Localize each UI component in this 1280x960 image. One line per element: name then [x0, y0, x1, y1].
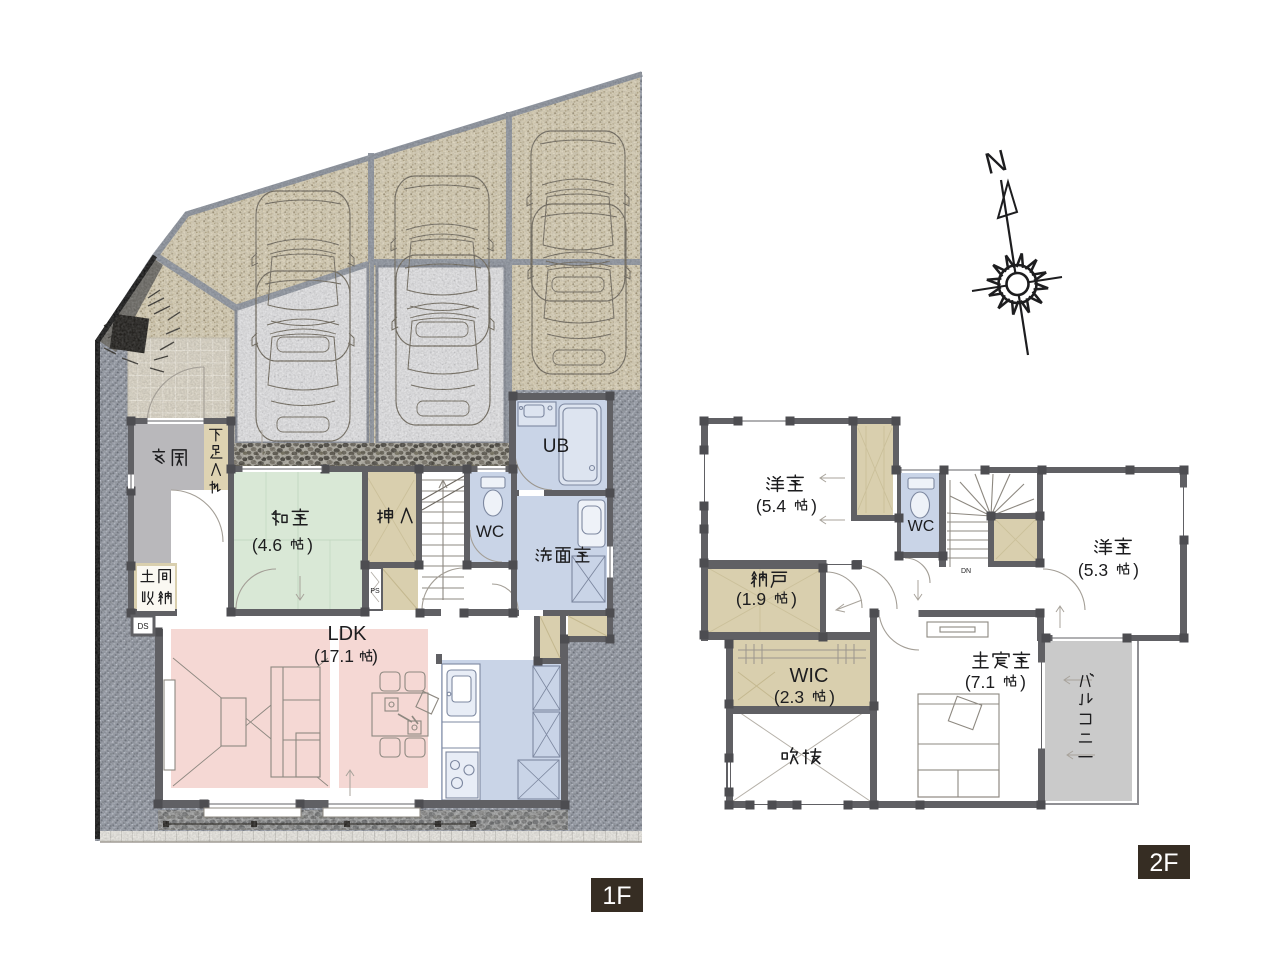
svg-text:): )	[829, 687, 835, 707]
svg-text:WC: WC	[476, 522, 504, 541]
svg-text:(7.1: (7.1	[965, 672, 995, 692]
svg-text:(17.1: (17.1	[314, 646, 354, 666]
svg-text:2F: 2F	[1149, 849, 1178, 877]
svg-text:): )	[1133, 560, 1139, 580]
svg-text:DN: DN	[961, 568, 971, 575]
svg-text:DS: DS	[137, 622, 148, 631]
svg-text:): )	[372, 646, 378, 666]
svg-text:(5.4: (5.4	[756, 496, 786, 516]
svg-text:(1.9: (1.9	[736, 589, 766, 609]
svg-text:): )	[307, 535, 313, 555]
svg-text:): )	[1020, 672, 1026, 692]
svg-text:WC: WC	[908, 518, 935, 535]
svg-text:UB: UB	[543, 436, 569, 457]
svg-text:): )	[791, 589, 797, 609]
svg-text:(5.3: (5.3	[1078, 560, 1108, 580]
svg-text:1F: 1F	[602, 882, 631, 910]
svg-text:): )	[811, 496, 817, 516]
svg-text:PS: PS	[370, 588, 380, 595]
svg-text:(2.3: (2.3	[774, 687, 804, 707]
svg-text:WIC: WIC	[790, 665, 829, 687]
svg-text:(4.6: (4.6	[252, 535, 282, 555]
svg-text:LDK: LDK	[328, 623, 368, 645]
